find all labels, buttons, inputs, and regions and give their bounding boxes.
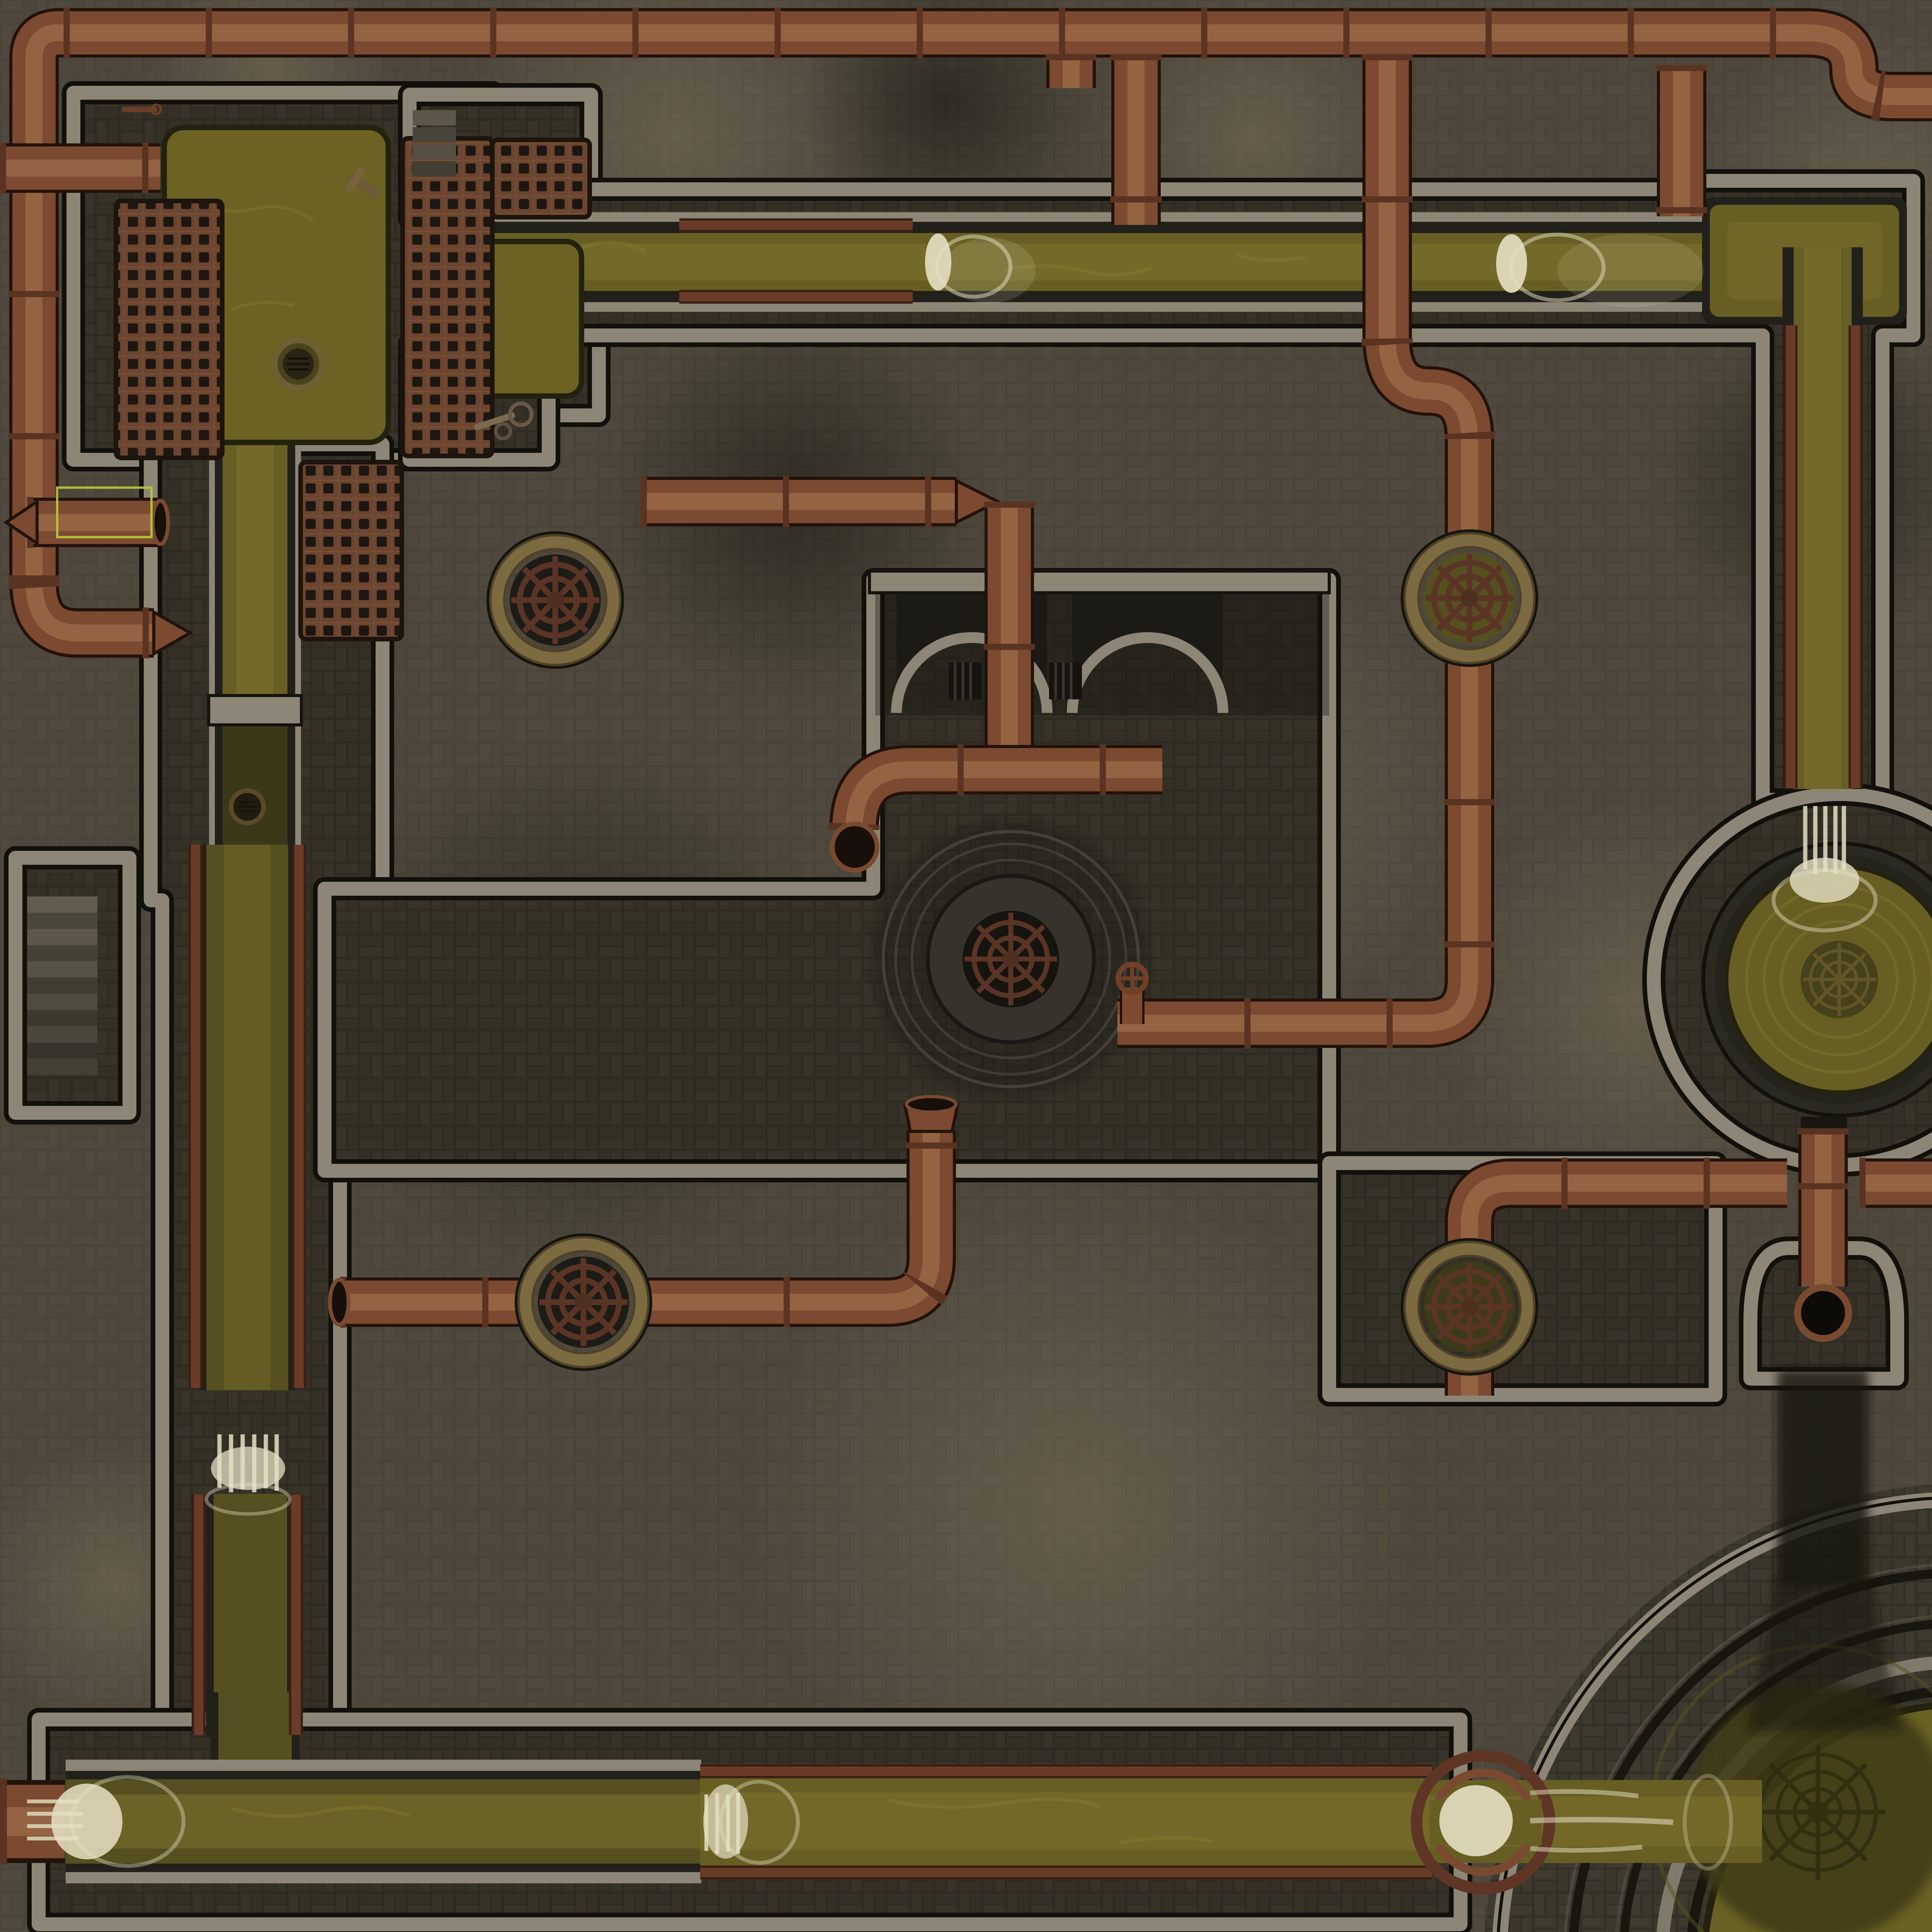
- channel-drain: [231, 791, 264, 823]
- channel-bridge: [209, 696, 301, 725]
- grate-platform: [116, 201, 222, 458]
- pool-drain: [274, 340, 322, 388]
- central-floor-drain: [872, 820, 1150, 1098]
- pipe-mouth: [832, 824, 877, 870]
- grate-platform: [403, 138, 492, 456]
- sewer-map: [0, 0, 1932, 1932]
- valve-handle: [1118, 964, 1146, 992]
- arched-wall: [869, 571, 1329, 716]
- map-canvas: [0, 0, 1932, 1932]
- pipe-mouth: [153, 501, 168, 544]
- pipe-mouth: [330, 1280, 349, 1325]
- grate-platform: [492, 140, 590, 217]
- grate-platform: [301, 462, 402, 639]
- open-pipe-shaft: [1798, 1287, 1849, 1338]
- stairwell: [27, 896, 97, 1075]
- cistern-center-grate: [1750, 1745, 1886, 1880]
- upper-cistern-grate: [1803, 943, 1876, 1016]
